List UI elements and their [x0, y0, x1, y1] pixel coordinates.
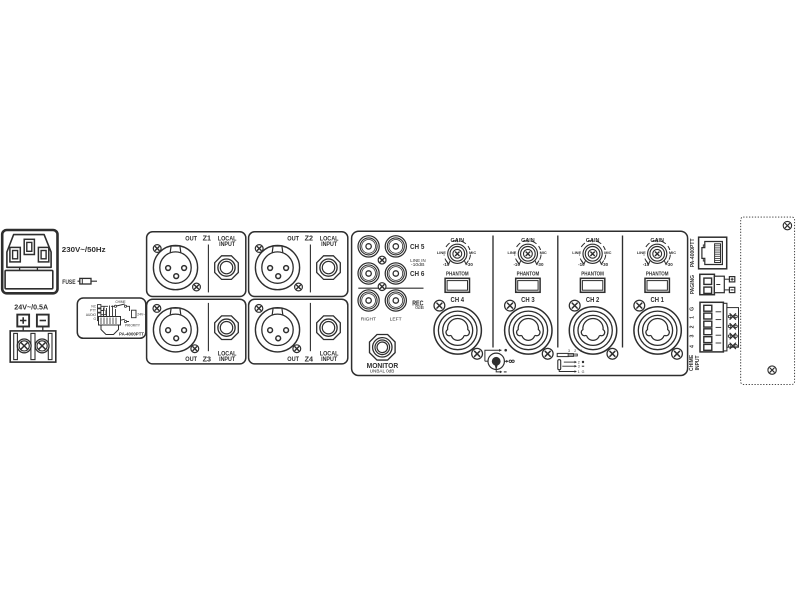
svg-text:MIC: MIC — [669, 250, 676, 255]
svg-text:MIC: MIC — [540, 250, 547, 255]
svg-text:OUT: OUT — [287, 235, 299, 242]
svg-text:PA-4000PTT: PA-4000PTT — [119, 332, 144, 337]
svg-text:OUT: OUT — [185, 356, 197, 363]
svg-text:24V~: 24V~ — [137, 313, 145, 317]
svg-text:OUT: OUT — [185, 235, 197, 242]
svg-text:G: G — [582, 370, 585, 374]
svg-text:LINE: LINE — [572, 250, 581, 255]
svg-text:2: 2 — [690, 325, 696, 328]
svg-text:0dB: 0dB — [415, 305, 424, 311]
svg-text:-10: -10 — [513, 262, 520, 267]
svg-text:G: G — [690, 307, 696, 311]
svg-text:INPUT: INPUT — [219, 356, 235, 363]
svg-text:LINE: LINE — [437, 250, 446, 255]
svg-text:CH 5: CH 5 — [410, 242, 424, 251]
svg-text:RIGHT: RIGHT — [361, 316, 376, 322]
svg-text:-30: -30 — [666, 262, 673, 267]
svg-text:INPUT: INPUT — [695, 355, 701, 370]
svg-text:CH 2: CH 2 — [586, 295, 600, 304]
svg-text:Z2: Z2 — [305, 234, 313, 243]
svg-text:MIC: MIC — [604, 250, 611, 255]
svg-text:3: 3 — [690, 334, 696, 337]
svg-text:4: 4 — [690, 345, 696, 348]
svg-text:FUSE: FUSE — [62, 279, 76, 286]
svg-text:PHANTOM: PHANTOM — [517, 271, 540, 277]
svg-text:CHIME: CHIME — [115, 300, 125, 304]
svg-text:-10dB: -10dB — [411, 262, 425, 268]
svg-text:CH 4: CH 4 — [451, 295, 465, 304]
svg-text:LINE: LINE — [508, 250, 517, 255]
svg-text:-30: -30 — [466, 262, 473, 267]
svg-text:PAGING: PAGING — [690, 275, 696, 294]
svg-text:PA-4000PTT: PA-4000PTT — [690, 238, 696, 267]
svg-text:INPUT: INPUT — [321, 241, 337, 248]
svg-text:INPUT: INPUT — [321, 356, 337, 363]
svg-text:PHANTOM: PHANTOM — [446, 271, 469, 277]
svg-text:MIC: MIC — [469, 250, 476, 255]
svg-text:CH 1: CH 1 — [650, 295, 664, 304]
svg-text:-30: -30 — [602, 262, 609, 267]
svg-text:Z4: Z4 — [305, 354, 313, 363]
svg-text:-10: -10 — [443, 262, 450, 267]
svg-text:CH 6: CH 6 — [410, 269, 424, 278]
svg-text:LEFT: LEFT — [390, 316, 402, 322]
svg-text:CH 3: CH 3 — [521, 295, 535, 304]
svg-text:230V~/50Hz: 230V~/50Hz — [62, 245, 106, 254]
svg-text:OUT: OUT — [287, 356, 299, 363]
svg-text:-10: -10 — [643, 262, 650, 267]
svg-text:Z1: Z1 — [203, 234, 211, 243]
svg-text:PHANTOM: PHANTOM — [646, 271, 669, 277]
svg-text:1: 1 — [578, 370, 580, 374]
svg-text:3: 3 — [578, 365, 580, 369]
svg-text:1: 1 — [690, 316, 696, 319]
svg-text:PHANTOM: PHANTOM — [581, 271, 604, 277]
svg-text:UNBAL 0dB: UNBAL 0dB — [370, 369, 395, 375]
svg-text:PRIORITY: PRIORITY — [125, 323, 141, 327]
svg-text:INPUT: INPUT — [219, 241, 235, 248]
svg-text:LINE: LINE — [637, 250, 646, 255]
svg-text:24V~/0.5A: 24V~/0.5A — [14, 302, 48, 311]
svg-text:-10: -10 — [578, 262, 585, 267]
svg-text:3 2 1: 3 2 1 — [568, 349, 584, 353]
svg-text:Z3: Z3 — [203, 354, 211, 363]
svg-text:-30: -30 — [537, 262, 544, 267]
